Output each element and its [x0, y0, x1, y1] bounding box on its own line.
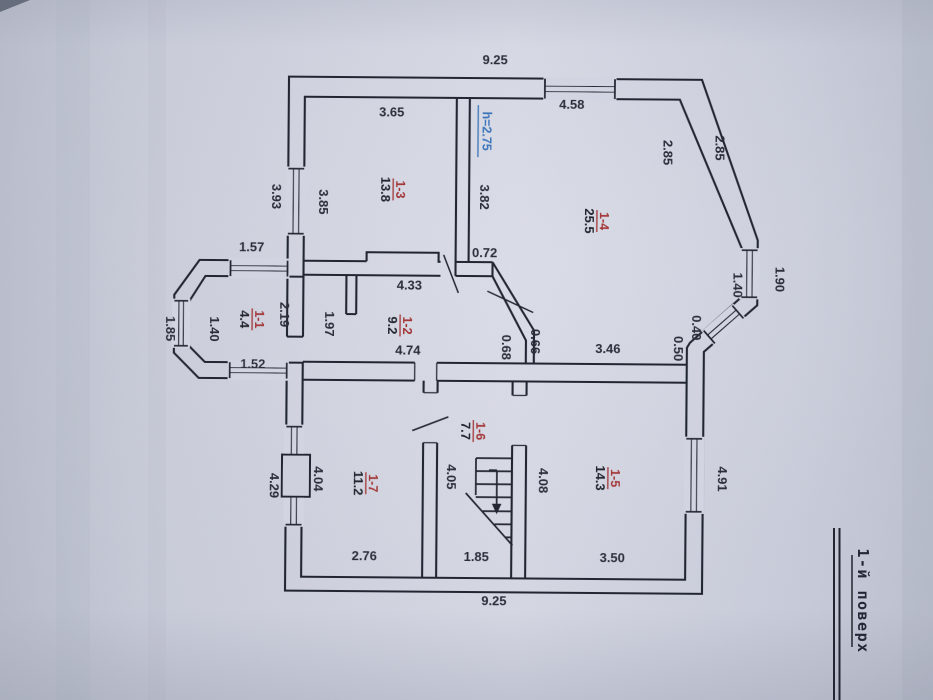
room-number: 1-4 — [597, 212, 611, 230]
room-label-1-5: 1-514.3 — [593, 465, 622, 491]
dimension-label-r14_diag_in: 2.85 — [660, 140, 675, 165]
dimension-label-rbay_in: 1.40 — [730, 272, 745, 297]
dimension-label-r15_right_out: 4.91 — [715, 466, 730, 491]
floor-plan-svg: 9.253.654.583.933.853.822.852.851.570.72… — [0, 0, 933, 700]
dimension-label-r14_width: 4.58 — [559, 97, 584, 112]
room-number: 1-1 — [252, 310, 266, 328]
dimension-label-top_overall: 9.25 — [482, 52, 507, 67]
dimension-label-diag_in: 0.66 — [528, 329, 543, 354]
dimension-label-r15_top: 3.46 — [595, 341, 620, 356]
window-bay-top — [228, 258, 289, 278]
dimension-label-r11_h: 2.19 — [277, 302, 292, 327]
room-label-1-4: 1-425.5 — [582, 208, 611, 234]
room-number: 1-3 — [393, 180, 407, 198]
room-area: 9.2 — [385, 316, 400, 334]
dimension-label-r15_left: 4.08 — [536, 468, 551, 493]
dimension-label-r12_bottom: 4.74 — [395, 342, 421, 357]
room-area: 11.2 — [351, 471, 366, 496]
dimension-label-rbay_small_in: 0.40 — [689, 315, 704, 340]
dimension-label-r17_left_out: 4.29 — [267, 473, 282, 498]
dimension-label-bay_top: 1.57 — [239, 239, 264, 254]
room-label-1-2: 1-29.2 — [385, 314, 414, 336]
room-number: 1-2 — [400, 316, 414, 334]
dimension-label-bay_bottom: 1.52 — [240, 356, 265, 371]
room-number: 1-7 — [366, 474, 380, 492]
floor-plan-photo: 9.253.654.583.933.853.822.852.851.570.72… — [0, 0, 933, 700]
dimension-label-rbay_out: 1.90 — [772, 267, 787, 292]
dimension-label-r16_left: 4.05 — [444, 464, 459, 489]
dimension-label-r13_width: 3.65 — [379, 104, 404, 119]
dimension-label-seg_072: 0.72 — [472, 245, 497, 260]
floor-title-text: 1-й поверх — [854, 548, 872, 653]
room-number: 1-5 — [608, 469, 622, 487]
room-label-1-3: 1-313.8 — [378, 177, 407, 203]
dimension-label-r13_left_in: 3.85 — [316, 189, 331, 214]
dimension-label-bottom_overall: 9.25 — [481, 593, 506, 608]
window-west-upper — [286, 167, 307, 236]
dimension-label-bay_left_out: 1.85 — [163, 316, 178, 341]
room-area: 4.4 — [237, 310, 252, 329]
dimension-label-r14_diag_out: 2.85 — [712, 135, 727, 160]
room-number: 1-6 — [473, 422, 487, 440]
room-area: 14.3 — [593, 465, 608, 490]
dimension-label-bay_left_in: 1.40 — [207, 316, 222, 341]
dimension-label-r17_left_in: 4.04 — [311, 466, 326, 492]
dimension-label-r12_top: 4.33 — [397, 277, 422, 292]
paper-background — [0, 0, 933, 700]
height-note-text: h=2.75 — [479, 111, 493, 150]
room-area: 7.7 — [458, 422, 473, 440]
dimension-label-r11_w: 1.97 — [322, 311, 337, 336]
room-label-1-6: 1-67.7 — [458, 420, 487, 442]
dimension-label-r15_width: 3.50 — [600, 550, 625, 565]
window-right — [684, 437, 705, 514]
room-label-1-7: 1-711.2 — [351, 471, 380, 496]
floor-title: 1-й поверх — [852, 548, 872, 653]
wall-pier — [282, 455, 310, 497]
height-note: h=2.75 — [478, 105, 494, 157]
dimension-label-rbay_small_out: 0.50 — [671, 336, 686, 361]
room-area: 25.5 — [582, 208, 597, 233]
room-area: 13.8 — [378, 177, 393, 202]
dimension-label-r16_width: 1.85 — [464, 549, 489, 564]
dimension-label-r13_right: 3.82 — [477, 184, 492, 209]
dimension-label-diag_out: 0.68 — [499, 335, 514, 360]
dimension-label-r17_width: 2.76 — [352, 548, 377, 563]
dimension-label-r13_left_out: 3.93 — [269, 184, 284, 209]
room-label-1-1: 1-14.4 — [237, 308, 266, 330]
